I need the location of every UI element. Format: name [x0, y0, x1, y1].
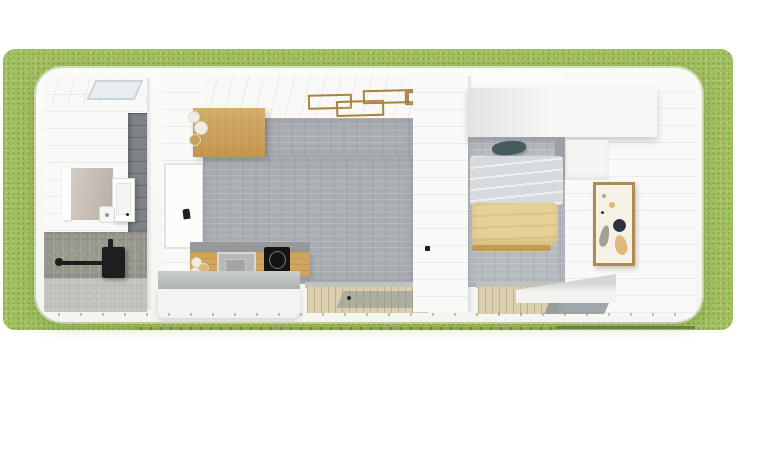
mirror-frame: [62, 167, 71, 220]
bedside-cabinet: [565, 140, 609, 180]
art-dot-3: [601, 211, 604, 214]
sink-drain: [105, 213, 109, 217]
medicine-cabinet: [112, 178, 135, 222]
bed-duvet: [470, 156, 563, 205]
lawn-edge-line: [556, 326, 695, 329]
kitchen-door-handle: [347, 296, 351, 300]
skylight: [87, 80, 144, 100]
art-dark-circle: [613, 219, 626, 232]
art-teardrop: [613, 234, 629, 256]
towel-bar: [61, 261, 106, 265]
kitchen-window: [164, 163, 204, 249]
kitchen-deck: [307, 287, 428, 313]
art-dot-1: [602, 194, 606, 198]
dashed-edge-line: [135, 327, 556, 330]
decor-vase-2: [194, 121, 208, 135]
window-faucet-silhouette: [182, 209, 190, 220]
art-leaf: [598, 224, 611, 247]
bed-rail: [472, 245, 551, 251]
floor-plan-render: [0, 0, 759, 455]
kitchen-upper-cabinet: [193, 108, 265, 157]
room-divider-shadow-1: [147, 78, 152, 310]
bathroom-sink: [99, 206, 115, 223]
wall-hung-black-unit: [102, 247, 125, 278]
counter-top: [190, 242, 310, 252]
art-dot-2: [609, 202, 615, 208]
concrete-vanity: [44, 232, 147, 278]
cooktop: [264, 247, 290, 272]
bathroom-floor: [44, 278, 147, 312]
framed-wall-art: [593, 182, 635, 266]
pocket-door-handle: [425, 246, 430, 251]
island-top: [158, 271, 300, 289]
cabinet-knob: [126, 213, 129, 216]
bed-yellow-blanket: [472, 203, 558, 245]
decor-vase-3: [189, 134, 201, 146]
tiny-house: [36, 68, 702, 322]
cabinet-shelf-line: [116, 183, 131, 215]
kitchen-floor-upper: [265, 118, 413, 158]
bottom-wall-stud-ticks: [58, 313, 680, 316]
kitchen-right-wall: [413, 76, 468, 312]
cooktop-reflection: [269, 251, 286, 269]
overhead-storage-slab: [468, 88, 657, 137]
